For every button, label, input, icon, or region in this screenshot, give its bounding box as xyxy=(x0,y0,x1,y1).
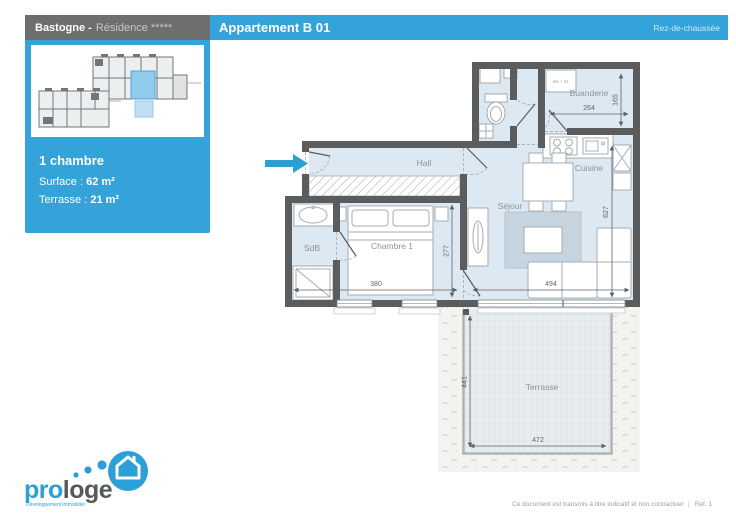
room-label-sdb: SdB xyxy=(304,243,320,253)
dim-sejour-height: 627 xyxy=(603,206,610,218)
brand-wordmark: prologe xyxy=(24,476,113,504)
logo-dot-medium xyxy=(84,466,91,473)
surface-label: Surface : xyxy=(39,176,83,188)
project-residence: Résidence ***** xyxy=(96,22,172,34)
wc-basin-icon xyxy=(479,124,493,138)
room-label-cuisine: Cuisine xyxy=(575,163,604,173)
footer-disclaimer: Ce document est transmis à titre indicat… xyxy=(512,501,712,508)
terrace-label: Terrasse : xyxy=(39,194,87,206)
info-panel: Bastogne - Résidence ***** xyxy=(25,15,210,233)
coffee-table-icon xyxy=(524,227,562,253)
footer-separator: | xyxy=(688,501,690,508)
fridge-icon xyxy=(613,145,631,190)
reference-text: Réf. 1 xyxy=(695,501,712,508)
toilet-icon xyxy=(485,94,507,124)
entrance-arrow-icon xyxy=(265,154,308,173)
logo-dot-large xyxy=(97,460,106,469)
project-name: Bastogne - xyxy=(35,22,92,34)
label-washer-dryer: ML + SL xyxy=(553,79,570,84)
title-bar: Appartement B 01 Rez-de-chaussée xyxy=(210,15,728,40)
floor-plan: Hall Buanderie Cuisine Séjour SdB Chambr… xyxy=(255,50,650,482)
surface-line: Surface : 62 m² xyxy=(39,176,119,188)
project-header: Bastogne - Résidence ***** xyxy=(25,15,210,40)
dim-terrasse-width: 472 xyxy=(532,437,544,444)
sideboard-icon xyxy=(468,208,488,266)
bathroom-sink-icon xyxy=(294,204,334,226)
room-count: 1 chambre xyxy=(39,153,119,168)
dim-sejour-width: 494 xyxy=(545,281,557,288)
site-plan-svg xyxy=(31,45,204,137)
terrace-paving xyxy=(465,310,610,452)
dim-buanderie-width: 264 xyxy=(583,105,595,112)
highlighted-unit xyxy=(131,71,155,99)
terrace-post xyxy=(463,309,469,315)
logo-tagline: Développement immobilier xyxy=(26,502,86,508)
room-label-terrasse: Terrasse xyxy=(526,382,559,392)
hall-closet-icon xyxy=(309,176,460,196)
page-title: Appartement B 01 xyxy=(210,20,653,35)
site-plan-thumbnail xyxy=(31,45,204,137)
shower-icon xyxy=(293,266,333,300)
room-label-sejour: Séjour xyxy=(498,201,523,211)
room-label-buanderie: Buanderie xyxy=(570,88,609,98)
dim-chambre-width: 380 xyxy=(370,281,382,288)
disclaimer-text: Ce document est transmis à titre indicat… xyxy=(512,501,683,508)
terrace-value: 21 m² xyxy=(90,194,119,206)
floorplan-sheet: Bastogne - Résidence ***** xyxy=(0,0,736,521)
terrace-line: Terrasse : 21 m² xyxy=(39,194,119,206)
highlighted-terrace xyxy=(135,101,153,117)
room-label-hall: Hall xyxy=(417,158,432,168)
floor-label: Rez-de-chaussée xyxy=(653,23,728,33)
dim-terrasse-height: 441 xyxy=(462,376,469,388)
company-logo: prologe Développement immobilier xyxy=(18,441,168,513)
brand-loge: loge xyxy=(63,476,113,504)
brand-pro: pro xyxy=(24,476,63,504)
apartment-info: 1 chambre Surface : 62 m² Terrasse : 21 … xyxy=(39,153,119,212)
surface-value: 62 m² xyxy=(86,176,115,188)
site-building-a xyxy=(39,88,121,127)
dim-chambre-height: 277 xyxy=(444,245,451,257)
dim-buanderie-height: 165 xyxy=(613,94,620,106)
room-label-chambre: Chambre 1 xyxy=(371,241,413,251)
